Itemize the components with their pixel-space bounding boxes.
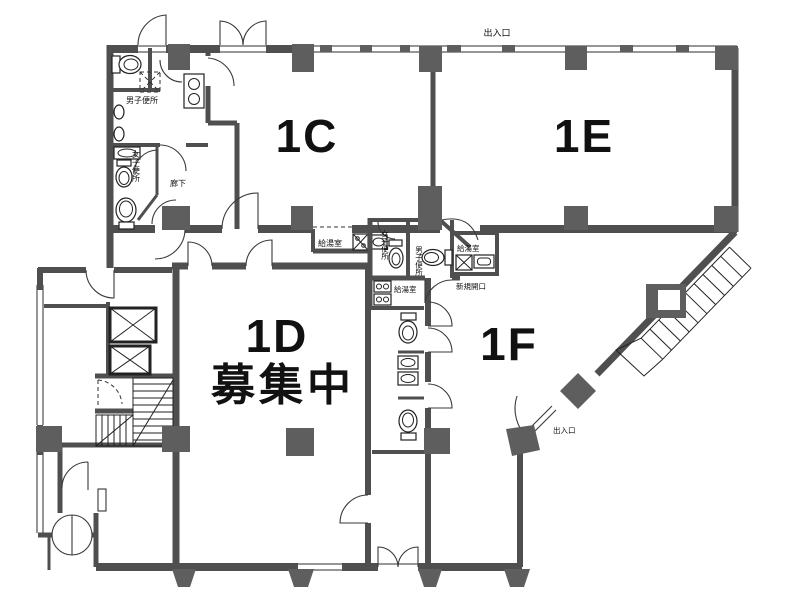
- diagonal-area: [428, 247, 751, 456]
- core: [44, 270, 176, 555]
- label-kitchen-east: 給湯室: [457, 243, 480, 253]
- toilet-icon: [399, 313, 417, 343]
- unit-label-1d: 1D: [246, 310, 309, 362]
- unit-label-1c: 1C: [276, 110, 339, 162]
- toilet-icon: [116, 160, 132, 187]
- top-entrance-doors: [138, 15, 266, 45]
- toilet-icon: [399, 410, 417, 440]
- door-arc: [428, 302, 452, 326]
- label-womens-wc-mid: 女子便所: [380, 229, 389, 261]
- unit-label-1f: 1F: [480, 318, 538, 370]
- unit-status-1d: 募集中: [210, 361, 355, 410]
- toilet-icon: [389, 240, 403, 268]
- sink-counter-icon: [184, 74, 204, 108]
- 1f-entrance-door: [506, 373, 596, 456]
- washbasin-icon: [398, 356, 418, 385]
- label-exit-1f: 出入口: [553, 425, 576, 435]
- double-door: [378, 547, 418, 567]
- label-womens-wc-nw: 女子便所: [132, 149, 141, 183]
- stove-icon: [353, 234, 368, 250]
- elevator-icon: [110, 308, 156, 374]
- external-stairs-icon: [616, 247, 751, 376]
- door-arc: [340, 328, 452, 523]
- label-new-opening: 新規開口: [456, 281, 486, 291]
- sink-icon: [474, 255, 494, 268]
- urinal-icon: [114, 105, 124, 141]
- toilet-icon: [422, 250, 452, 266]
- double-swing-door: [98, 380, 122, 406]
- label-corridor: 廊下: [170, 178, 186, 188]
- nw-toilet-block: [110, 48, 237, 229]
- stove-icon: [456, 255, 472, 270]
- stove-icon: [374, 281, 391, 305]
- floorplan: 1C 1E 1D 募集中 1F 出入口 男子便所 女子便所 廊下 給湯室 女子便…: [0, 0, 787, 608]
- label-mens-wc-mid: 男子便所: [414, 246, 423, 277]
- butterfly-door: [52, 515, 92, 555]
- columns: [36, 44, 738, 587]
- toilet-icon: [112, 56, 141, 74]
- label-kitchen-corridor: 給湯室: [318, 238, 342, 248]
- unit-label-1e: 1E: [554, 110, 614, 162]
- under-stair-room: [62, 462, 106, 511]
- label-kitchen-south: 給湯室: [394, 284, 417, 294]
- label-exit-top: 出入口: [483, 27, 510, 38]
- label-mens-wc-nw: 男子便所: [126, 95, 158, 105]
- toilet-icon: [116, 198, 136, 229]
